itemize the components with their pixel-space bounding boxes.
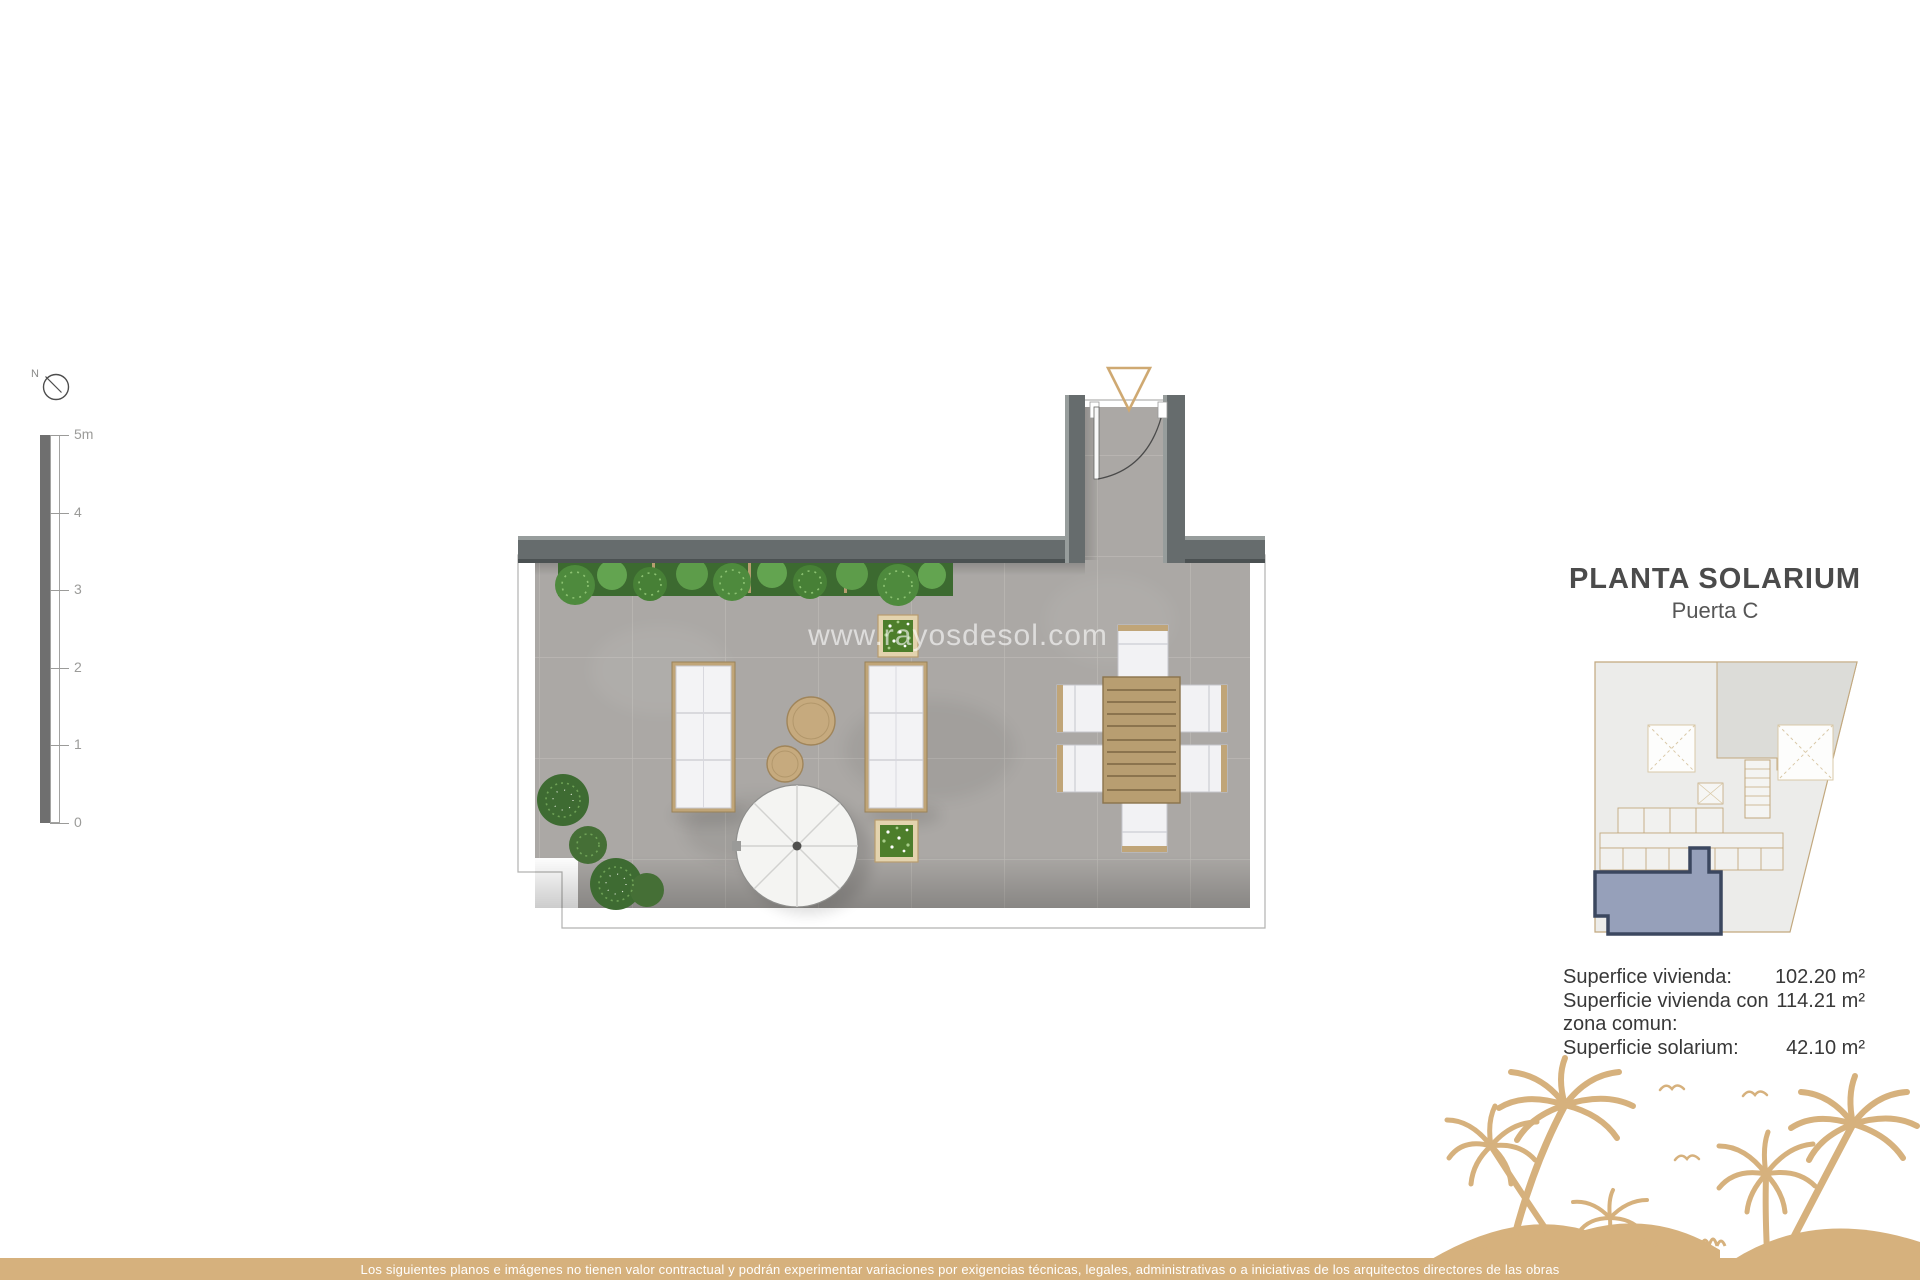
footer-bar: Los siguientes planos e imágenes no tien… [0,1258,1920,1280]
dining-chair [1057,685,1103,732]
palm-crown-icon [1791,1076,1917,1160]
watermark: www.rayosdesol.com [807,619,1108,652]
scale-label: 1 [74,736,82,752]
minimap-courtyard [1778,725,1833,780]
disclaimer-text: Los siguientes planos e imágenes no tien… [361,1262,1560,1277]
planter-bottom [875,820,918,862]
areas-list: Superfice vivienda: 102.20 m² Superficie… [1563,966,1865,1061]
page-title: PLANTA SOLARIUM [1530,563,1900,596]
birds-icon [1660,1086,1767,1161]
dining-chair [1122,802,1167,852]
location-minimap [1580,640,1880,950]
minimap-small-patio [1698,783,1723,804]
area-value: 114.21 m² [1776,990,1865,1013]
scale-tick [50,435,69,436]
minimap-stairs [1745,760,1770,818]
area-row: Superfice vivienda: 102.20 m² [1563,966,1865,989]
dining-chair [1180,745,1227,792]
dining-chair [1180,685,1227,732]
area-row: Superficie vivienda con zona comun: 114.… [1563,990,1865,1036]
scale-label: 4 [74,504,82,520]
area-value: 102.20 m² [1775,966,1865,989]
scale-label: 3 [74,581,82,597]
floor-plan: www.rayosdesol.com [500,360,1290,950]
scale-label: 5m [74,426,93,442]
scale-bar-track [50,435,60,823]
scale-bar-fill [40,435,50,823]
north-label: N [31,368,39,380]
page: N 5m 4 3 2 1 0 [0,0,1920,1280]
scale-label: 0 [74,814,82,830]
wall-top [518,536,1085,563]
door-jamb [1158,402,1167,418]
dining-chair [1118,625,1168,677]
palm-crown-icon [1447,1106,1537,1184]
palm-island-right [1701,1076,1920,1260]
scale-bar: 5m 4 3 2 1 0 [40,435,130,825]
door-leaf [1094,407,1099,479]
scale-label: 2 [74,659,82,675]
north-indicator: N [28,363,82,409]
dining-table [1103,677,1180,803]
minimap-courtyard [1648,725,1695,772]
scale-tick [50,668,69,669]
scale-tick [50,513,69,514]
scale-tick [50,745,69,746]
scale-tick [50,590,69,591]
area-label: Superfice vivienda: [1563,966,1775,989]
area-label: Superficie vivienda con zona comun: [1563,990,1776,1036]
page-subtitle: Puerta C [1530,598,1900,624]
palm-trees-illustration [1415,1050,1920,1260]
compass-needle-icon [46,377,62,393]
dining-chair [1057,745,1103,792]
scale-tick [50,823,69,824]
